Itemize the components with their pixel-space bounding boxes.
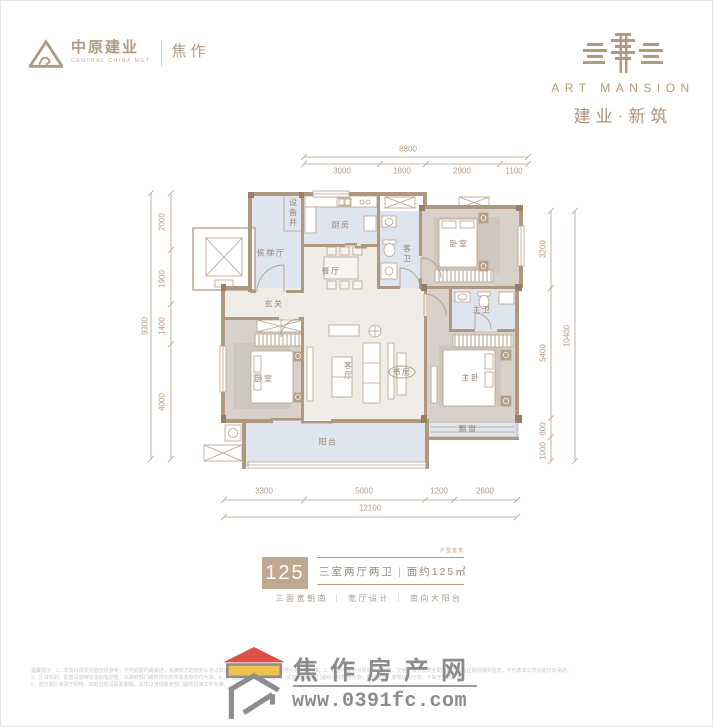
room-label-bay-window: 飘窗 — [459, 425, 478, 434]
unit-features: 三面宽朝南 ｜ 宽厅设计 ｜ 南向大阳台 — [276, 593, 463, 604]
dim-bottom-3: 2600 — [476, 487, 494, 496]
room-label-guest-bath: 客卫 — [403, 244, 412, 264]
dim-right-1: 5400 — [539, 344, 548, 362]
dim-left-total: 9300 — [141, 317, 150, 335]
room-label-master-bath: 主卫 — [473, 306, 492, 315]
dim-bottom-1: 5000 — [355, 487, 373, 496]
unit-number-badge: 125 — [262, 557, 308, 589]
info-rule-bottom — [317, 584, 464, 585]
dim-right-2: 800 — [539, 422, 548, 435]
site-url: www.0391fc.com — [292, 690, 467, 713]
dim-right-3: 1000 — [539, 442, 548, 460]
room-label-foyer: 玄关 — [265, 300, 284, 309]
dim-left-0: 2000 — [158, 213, 167, 231]
dim-bottom-0: 3300 — [255, 487, 273, 496]
room-label-bedroom-bl: 卧室 — [255, 375, 274, 384]
unit-layout: 三室两厅两卫 — [319, 566, 394, 578]
dim-top-2: 2900 — [453, 167, 471, 176]
room-label-bedroom-tr: 卧室 — [450, 240, 469, 249]
dim-left-2: 1400 — [158, 317, 167, 335]
dim-top-1: 1800 — [393, 167, 411, 176]
room-label-master-bedroom: 主卧 — [462, 374, 481, 383]
dim-top-3: 1100 — [505, 167, 522, 176]
dim-top-total: 8800 — [399, 145, 417, 154]
dim-left-1: 1900 — [158, 270, 167, 288]
info-rule-top — [317, 557, 464, 558]
dim-left-3: 4000 — [158, 393, 167, 411]
room-label-shaft: 设备井 — [289, 198, 298, 228]
dim-right-total: 10400 — [563, 325, 572, 347]
info-watermark: 户型鉴赏 — [440, 547, 464, 554]
dim-right-0: 3200 — [539, 240, 548, 258]
unit-summary-divider: | — [394, 566, 407, 578]
site-rule — [293, 685, 477, 687]
site-name: 焦作房产网 — [293, 651, 478, 687]
room-label-kitchen: 厨房 — [332, 221, 351, 230]
room-label-elevator-hall: 侯梯厅 — [257, 249, 286, 258]
room-label-study: 书房 — [389, 366, 416, 379]
unit-area: 面约125㎡ — [407, 566, 468, 578]
room-label-balcony: 阳台 — [319, 438, 338, 447]
room-label-living: 客厅 — [344, 361, 353, 381]
dim-top-0: 3000 — [333, 167, 351, 176]
dim-bottom-total: 12100 — [359, 504, 381, 513]
floorplan-drawing — [1, 1, 713, 727]
unit-summary: 三室两厅两卫|面约125㎡ — [319, 564, 465, 579]
room-label-dining: 餐厅 — [322, 267, 341, 276]
dim-bottom-2: 1200 — [430, 487, 448, 496]
poster-page: 中原建业 CENTRAL CHINA MGT 焦作 ART MANSION 建业… — [0, 0, 713, 727]
site-logo-house-icon — [223, 647, 285, 721]
